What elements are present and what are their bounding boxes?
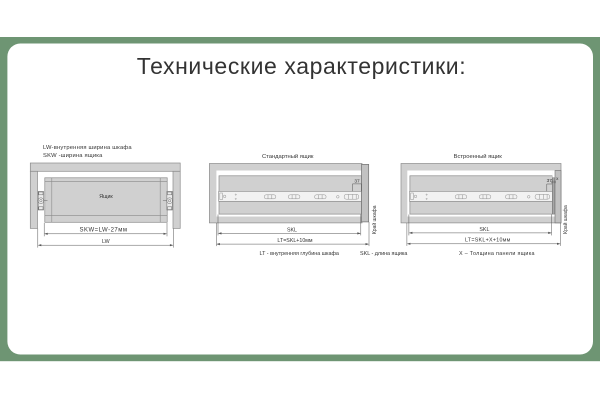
svg-text:Технические характеристики:: Технические характеристики: bbox=[137, 53, 467, 79]
svg-text:LT=SKL+10мм: LT=SKL+10мм bbox=[277, 238, 313, 244]
svg-text:LW-внутренняя ширина шкафа: LW-внутренняя ширина шкафа bbox=[43, 145, 132, 151]
svg-text:37: 37 bbox=[354, 178, 360, 184]
svg-text:SKL: SKL bbox=[479, 227, 489, 233]
svg-text:LT - внутренняя глубина шкафа: LT - внутренняя глубина шкафа bbox=[260, 251, 339, 257]
svg-text:SKL: SKL bbox=[287, 227, 297, 233]
svg-text:LW: LW bbox=[102, 239, 110, 245]
svg-text:LT=SKL+X+10мм: LT=SKL+X+10мм bbox=[465, 238, 511, 244]
svg-text:37: 37 bbox=[547, 178, 553, 184]
svg-text:SKW=LW-27мм: SKW=LW-27мм bbox=[79, 228, 127, 234]
svg-text:Край шкафа: Край шкафа bbox=[371, 205, 378, 234]
svg-text:SKW -ширина ящика: SKW -ширина ящика bbox=[43, 153, 103, 159]
svg-text:SKL - длина ящика: SKL - длина ящика bbox=[360, 251, 407, 257]
svg-text:X – Толщина панели ящика: X – Толщина панели ящика bbox=[459, 251, 535, 257]
svg-text:Ящик: Ящик bbox=[99, 194, 113, 200]
svg-text:Край шкафа: Край шкафа bbox=[562, 205, 569, 234]
svg-text:Стандартный ящик: Стандартный ящик bbox=[262, 153, 314, 160]
svg-text:Встроенный ящик: Встроенный ящик bbox=[454, 153, 503, 160]
